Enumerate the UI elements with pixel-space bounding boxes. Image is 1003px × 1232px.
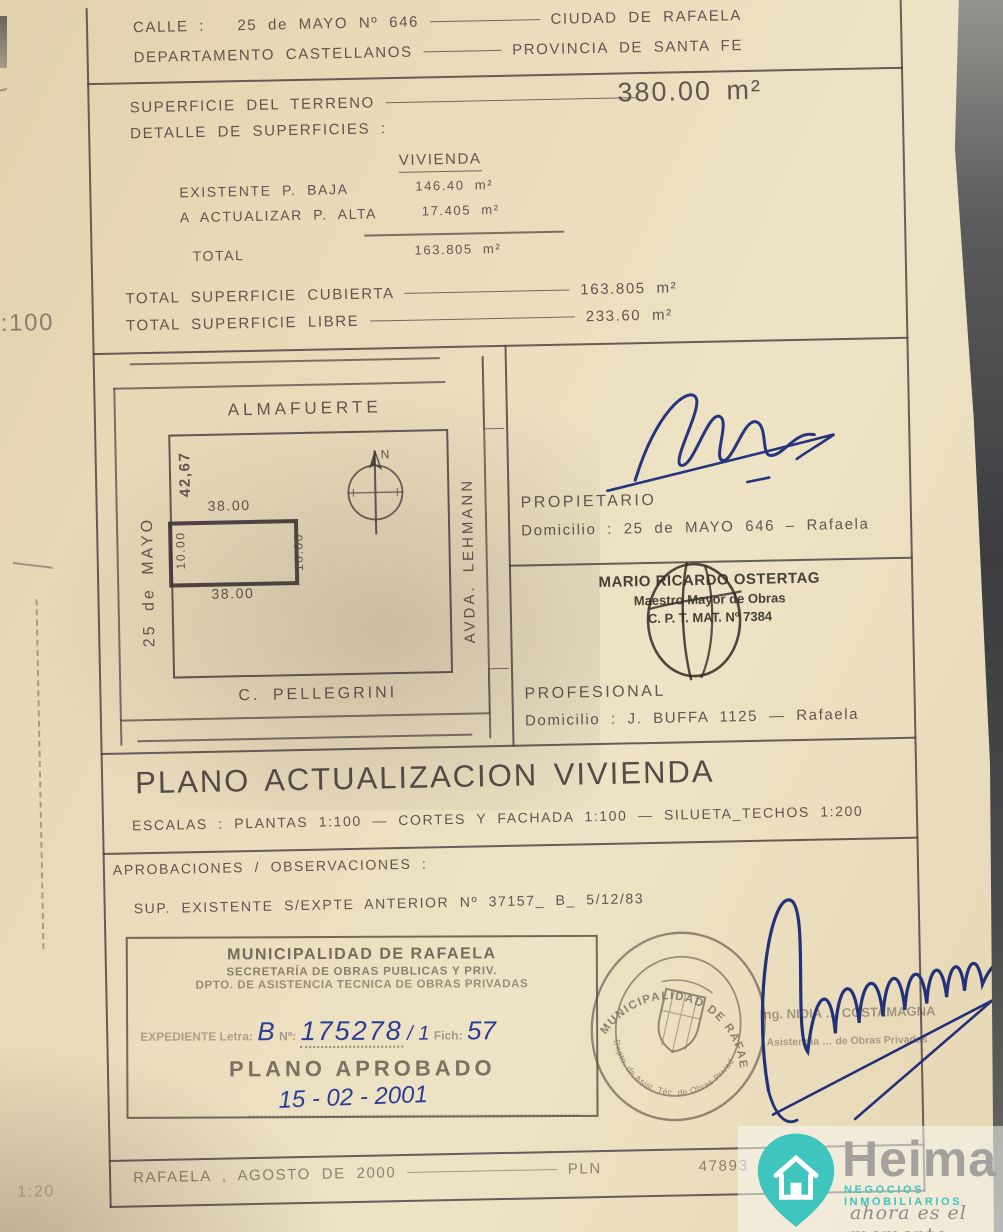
vivienda-column-title: VIVIENDA [399, 150, 482, 173]
total-value: 163.805 m² [414, 241, 501, 258]
approver-signature [740, 848, 1003, 1133]
depto-label: DEPARTAMENTO CASTELLANOS [133, 44, 412, 67]
total-covered-row: TOTAL SUPERFICIE CUBIERTA 163.805 m² [125, 279, 677, 307]
depto-leader-line [423, 50, 501, 53]
exp-fich-handwritten: 57 [467, 1015, 496, 1045]
surface-detail-label: DETALLE DE SUPERFICIES : [130, 120, 387, 142]
footer-leader-line [407, 1169, 557, 1173]
muni-line1: MUNICIPALIDAD DE RAFAELA [128, 945, 596, 965]
calle-label: CALLE : [133, 18, 205, 36]
exp-sep-handwritten: / 1 [407, 1023, 429, 1045]
muni-line2: SECRETARÍA DE OBRAS PUBLICAS Y PRIV. [128, 965, 596, 979]
muni-line3: DPTO. DE ASISTENCIA TECNICA DE OBRAS PRI… [128, 978, 596, 992]
divider-header [87, 67, 903, 86]
divider-surface [93, 337, 909, 356]
libre-value: 233.60 m² [586, 306, 673, 325]
street-row: CALLE : 25 de MAYO Nº 646 CIUDAD DE RAFA… [133, 7, 742, 36]
professional-signature [629, 555, 762, 688]
approvals-heading: APROBACIONES / OBSERVACIONES : [113, 856, 428, 878]
calle-leader-line [430, 19, 540, 22]
heima-tagline: ahora es el momento [850, 1202, 1003, 1232]
terreno-label: SUPERFICIE DEL TERRENO [129, 94, 375, 116]
scanned-plan-photo: { "header": { "calle_label": "CALLE :", … [0, 0, 1003, 1232]
calle-city: CIUDAD DE RAFAELA [550, 7, 742, 28]
libre-leader-line [370, 316, 575, 321]
photo-shadow-bottom-left [0, 1040, 340, 1232]
heima-brand-text: Heima [842, 1134, 997, 1184]
terreno-leader-line [386, 97, 636, 103]
surface-row-existente-label: EXISTENTE P. BAJA [179, 181, 349, 200]
calle-value: 25 de MAYO Nº 646 [237, 14, 419, 35]
exp-fich-label: Fich: [434, 1028, 463, 1042]
margin-scale-1-100: 1:100 [0, 309, 54, 338]
libre-label: TOTAL SUPERFICIE LIBRE [126, 313, 360, 335]
heima-pin-icon [750, 1130, 842, 1230]
photo-shadow-center [40, 380, 600, 810]
surface-row-existente-value: 146.40 m² [415, 177, 493, 194]
cubierta-leader-line [405, 290, 570, 294]
department-row: DEPARTAMENTO CASTELLANOS PROVINCIA DE SA… [133, 37, 743, 66]
terrain-surface-row: SUPERFICIE DEL TERRENO [129, 89, 635, 116]
cubierta-value: 163.805 m² [580, 279, 677, 298]
surface-row-actualizar-label: A ACTUALIZAR P. ALTA [180, 205, 377, 225]
margin-tick-top [0, 88, 7, 94]
total-rule-line [364, 231, 564, 237]
cubierta-label: TOTAL SUPERFICIE CUBIERTA [125, 285, 394, 307]
surface-row-actualizar-value: 17.405 m² [422, 202, 500, 219]
photo-edge-nick [0, 16, 7, 68]
croquis-road-top-outer [130, 357, 440, 365]
approvals-note: SUP. EXISTENTE S/EXPTE ANTERIOR Nº 37157… [134, 890, 645, 916]
heima-watermark: Heima NEGOCIOS INMOBILIARIOS ahora es el… [738, 1126, 1003, 1232]
depto-prov: PROVINCIA DE SANTA FE [512, 37, 743, 59]
owner-signature [595, 378, 857, 498]
footer-pln: PLN [568, 1160, 602, 1178]
terrain-surface-value: 380.00 m² [617, 75, 762, 109]
total-free-row: TOTAL SUPERFICIE LIBRE 233.60 m² [126, 306, 673, 334]
total-label: TOTAL [192, 247, 244, 264]
